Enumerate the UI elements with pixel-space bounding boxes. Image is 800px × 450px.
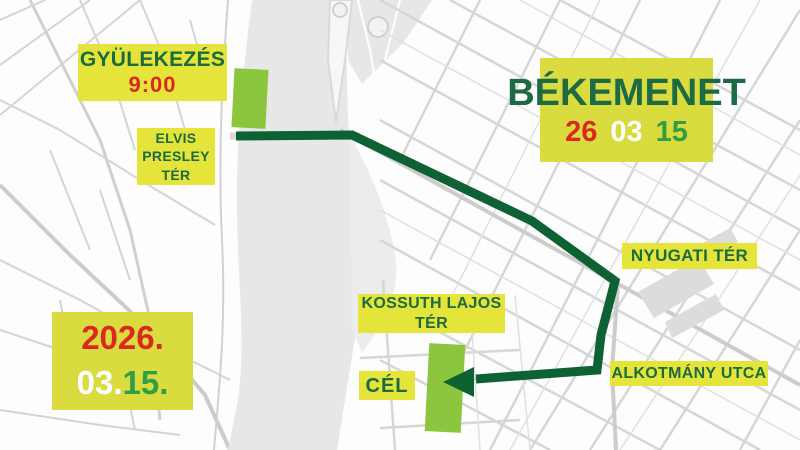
kossuth-line-1: KOSSUTH LAJOS [362,294,502,313]
label-alkotmany-utca: ALKOTMÁNY UTCA [610,361,768,386]
elvis-line-3: TÉR [162,166,191,184]
gathering-title: GYÜLEKEZÉS [80,47,225,72]
elvis-line-1: ELVIS [156,129,197,147]
label-nyugati-ter: NYUGATI TÉR [622,243,757,269]
route-map-poster: GYÜLEKEZÉS 9:00 ELVIS PRESLEY TÉR BÉKEME… [0,0,800,450]
date-box-month: 03. [77,361,123,406]
finish-text: CÉL [366,374,409,398]
date-box-year: 2026. [81,316,164,361]
label-gathering: GYÜLEKEZÉS 9:00 [78,44,227,101]
label-finish: CÉL [359,371,415,400]
label-kossuth-lajos-ter: KOSSUTH LAJOS TÉR [358,294,505,333]
event-date-month: 03 [610,118,642,147]
date-box-monthday: 03. 15. [77,361,169,406]
nyugati-text: NYUGATI TÉR [631,246,748,266]
kossuth-line-2: TÉR [415,314,448,333]
date-box: 2026. 03. 15. [52,312,193,410]
event-date-day: 15 [656,118,688,147]
start-marker [231,68,268,129]
date-box-day: 15. [123,361,169,406]
gathering-time: 9:00 [128,72,176,98]
alkotmany-text: ALKOTMÁNY UTCA [611,364,766,383]
title-panel: BÉKEMENET 26 03 15 [540,58,713,162]
event-date: 26 03 15 [565,118,688,147]
label-elvis-presley-ter: ELVIS PRESLEY TÉR [137,128,215,185]
elvis-line-2: PRESLEY [142,147,209,165]
event-date-year: 26 [565,118,597,147]
event-title: BÉKEMENET [507,74,746,112]
